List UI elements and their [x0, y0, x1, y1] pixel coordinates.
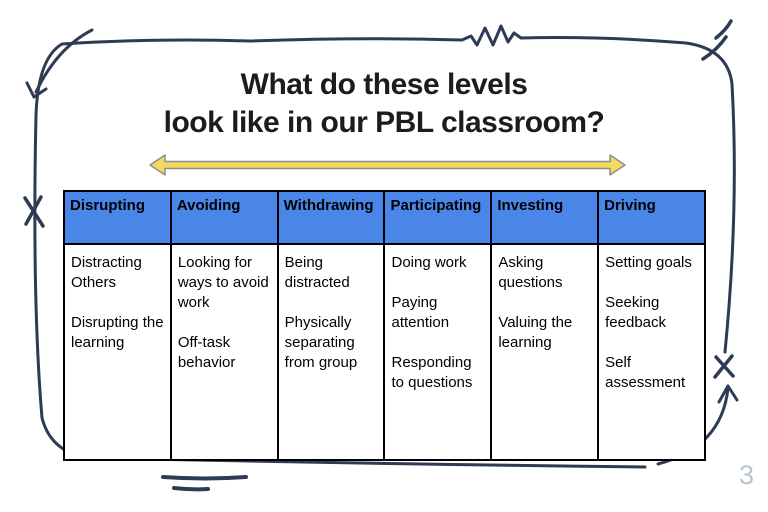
column-header-participating: Participating	[384, 191, 491, 244]
cell-participating: Doing work Paying attention Responding t…	[384, 244, 491, 460]
cell-item: Doing work	[391, 253, 486, 273]
column-header-disrupting: Disrupting	[64, 191, 171, 244]
cell-item: Self assessment	[605, 353, 700, 393]
table-header-row: Disrupting Avoiding Withdrawing Particip…	[64, 191, 705, 244]
underline-strokes	[163, 477, 246, 489]
levels-table-body: Distracting Others Disrupting the learni…	[64, 244, 705, 460]
cell-item: Responding to questions	[391, 353, 486, 393]
cell-item: Off-task behavior	[178, 333, 273, 373]
cell-disrupting: Distracting Others Disrupting the learni…	[64, 244, 171, 460]
levels-table-header: Disrupting Avoiding Withdrawing Particip…	[64, 191, 705, 244]
cell-item: Valuing the learning	[498, 313, 593, 353]
cell-item: Paying attention	[391, 293, 486, 333]
cell-item: Disrupting the learning	[71, 313, 166, 353]
column-header-withdrawing: Withdrawing	[278, 191, 385, 244]
double-headed-arrow-icon	[150, 155, 625, 175]
cell-avoiding: Looking for ways to avoid work Off-task …	[171, 244, 278, 460]
cell-item: Being distracted	[285, 253, 380, 293]
cell-item: Physically separating from group	[285, 313, 380, 373]
page-title: What do these levels look like in our PB…	[64, 66, 704, 142]
cell-item: Seeking feedback	[605, 293, 700, 333]
column-header-avoiding: Avoiding	[171, 191, 278, 244]
table-body-row: Distracting Others Disrupting the learni…	[64, 244, 705, 460]
column-header-investing: Investing	[491, 191, 598, 244]
cell-investing: Asking questions Valuing the learning	[491, 244, 598, 460]
cell-driving: Setting goals Seeking feedback Self asse…	[598, 244, 705, 460]
cell-item: Looking for ways to avoid work	[178, 253, 273, 313]
title-line-1: What do these levels	[64, 66, 704, 104]
cell-item: Setting goals	[605, 253, 700, 273]
title-line-2: look like in our PBL classroom?	[64, 104, 704, 142]
cell-item: Distracting Others	[71, 253, 166, 293]
cell-item: Asking questions	[498, 253, 593, 293]
levels-table: Disrupting Avoiding Withdrawing Particip…	[63, 190, 706, 461]
cell-withdrawing: Being distracted Physically separating f…	[278, 244, 385, 460]
slide-number: 3	[739, 460, 754, 490]
column-header-driving: Driving	[598, 191, 705, 244]
slide: What do these levels look like in our PB…	[0, 0, 768, 512]
right-x-mark-icon	[715, 356, 733, 377]
